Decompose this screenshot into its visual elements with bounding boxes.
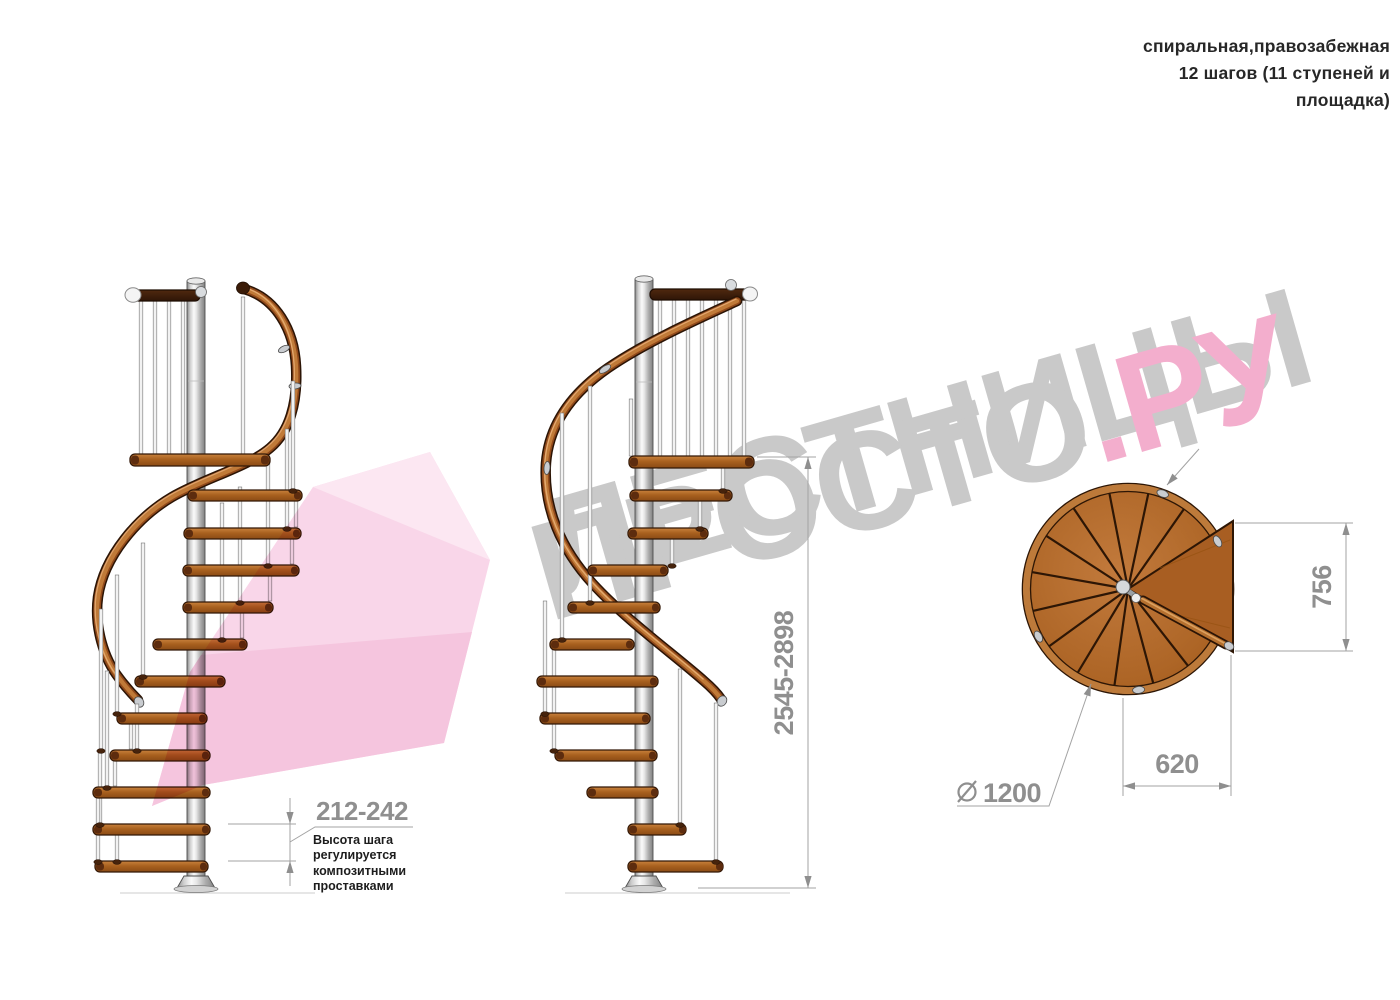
pole-base-plate	[622, 886, 666, 893]
pole-base-plate	[174, 886, 218, 893]
title-line-3: площадка)	[1143, 87, 1390, 114]
pole-top-cap	[635, 276, 653, 282]
dim-diameter: 1200	[957, 683, 1094, 808]
title-block: спиральная,правозабежная 12 шагов (11 ст…	[1143, 33, 1390, 114]
note-line-1: Высота шага	[313, 833, 406, 848]
title-line-2: 12 шагов (11 ступеней и	[1143, 60, 1390, 87]
drawing-sheet: ЛЕСТНИЦЫ ПРОСТО.РУ	[0, 0, 1400, 1000]
handrail-sleeve	[277, 344, 290, 355]
dim-diameter-label: 1200	[983, 778, 1041, 808]
handrail-start-cap	[237, 282, 250, 294]
plan-view	[1023, 484, 1236, 695]
handrail-end-ball	[743, 287, 758, 301]
note-line-2: регулируется	[313, 848, 406, 863]
diameter-icon	[958, 781, 976, 802]
step	[540, 713, 650, 724]
step	[93, 824, 210, 835]
staircase-drawing: ЛЕСТНИЦЫ ПРОСТО.РУ	[0, 0, 1400, 1000]
dim-step-height-label: 212-242	[316, 796, 408, 826]
step	[587, 787, 658, 798]
dim-landing-depth: 756	[1235, 523, 1353, 651]
title-line-1: спиральная,правозабежная	[1143, 33, 1390, 60]
dim-landing-depth-label: 756	[1307, 565, 1337, 609]
step-height-note: Высота шага регулируется композитными пр…	[313, 833, 406, 894]
step	[188, 490, 302, 501]
step	[537, 676, 658, 687]
step	[588, 565, 668, 576]
landing-railing	[125, 287, 245, 455]
pole-top-cap	[187, 278, 205, 284]
step	[628, 861, 723, 872]
dim-landing-width-label: 620	[1155, 749, 1199, 779]
handrail-pole-ball	[726, 280, 737, 291]
step	[555, 750, 657, 761]
landing-platform	[130, 454, 270, 466]
pole-cap	[1116, 580, 1130, 594]
dim-total-height-label: 2545-2898	[769, 610, 799, 735]
handrail-end-ball	[125, 288, 141, 302]
landing-platform	[629, 456, 754, 468]
handrail-pole-ball	[196, 287, 207, 298]
step	[95, 861, 208, 872]
note-line-4: проставками	[313, 879, 406, 894]
step	[568, 602, 660, 613]
note-line-3: композитными	[313, 864, 406, 879]
step	[630, 490, 732, 501]
